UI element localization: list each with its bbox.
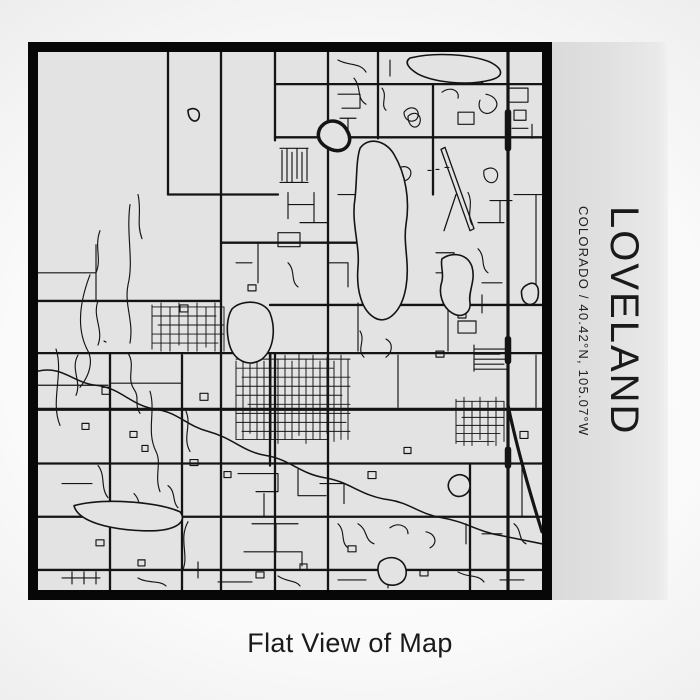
vertical-label: LOVELAND COLORADO / 40.42°N, 105.07°W (576, 42, 644, 600)
map-subtitle: COLORADO / 40.42°N, 105.07°W (576, 42, 591, 600)
map-product-mockup: LOVELAND COLORADO / 40.42°N, 105.07°W Fl… (0, 0, 700, 700)
water-bodies (74, 55, 538, 586)
map-svg (38, 52, 542, 590)
view-caption: Flat View of Map (0, 628, 700, 659)
label-panel: LOVELAND COLORADO / 40.42°N, 105.07°W (552, 42, 668, 600)
map-print (28, 42, 552, 600)
thick-outline-lake (318, 121, 349, 151)
map-title: LOVELAND (604, 42, 644, 600)
airport-runway (441, 147, 474, 230)
